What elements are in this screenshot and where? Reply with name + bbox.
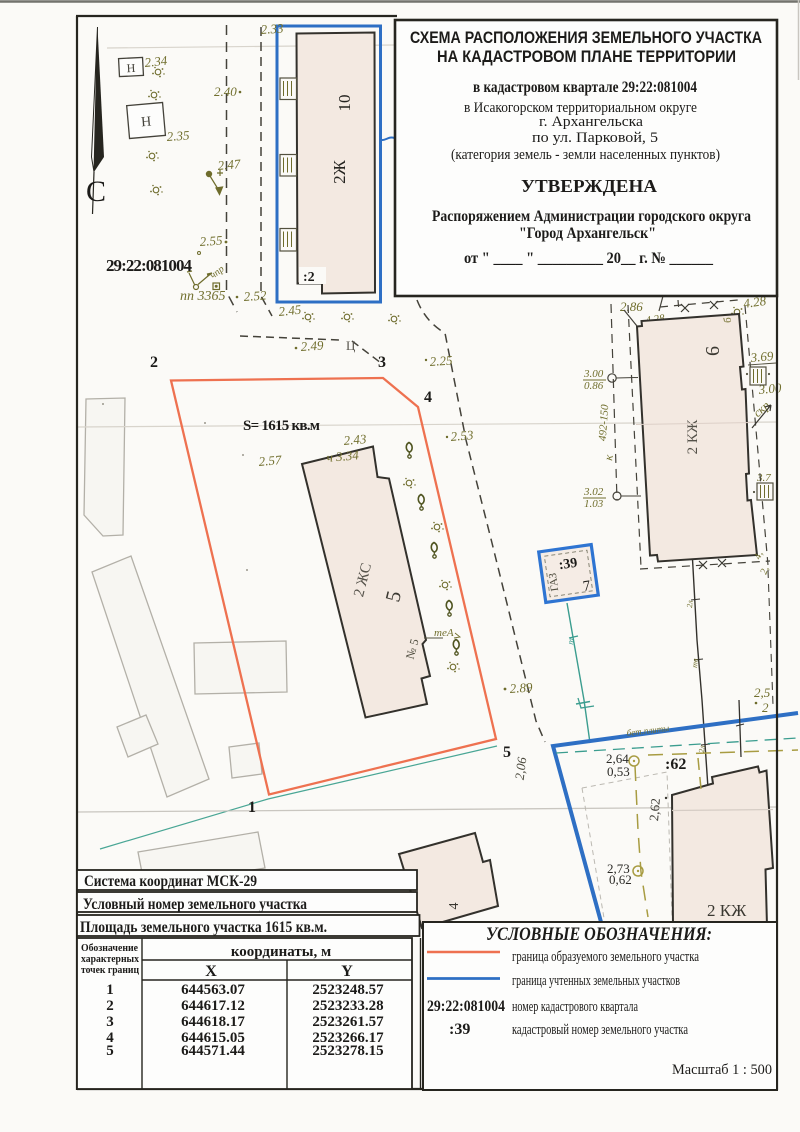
svg-text::62: :62 — [665, 756, 686, 773]
svg-text:2.49: 2.49 — [300, 337, 324, 354]
svg-text:1: 1 — [248, 799, 256, 816]
svg-text:0.86: 0.86 — [584, 380, 604, 392]
svg-text:2.53: 2.53 — [450, 427, 474, 444]
svg-text:Условный номер земельного учас: Условный номер земельного участка — [83, 896, 307, 913]
svg-text:пп 3365: пп 3365 — [180, 289, 226, 304]
svg-text:2523278.15: 2523278.15 — [312, 1043, 383, 1059]
svg-text:(категория земель - земли насе: (категория земель - земли населенных пун… — [451, 147, 720, 163]
svg-text:г. Архангельска: г. Архангельска — [539, 114, 643, 130]
svg-text::2: :2 — [303, 270, 315, 285]
svg-text:2: 2 — [106, 998, 114, 1014]
svg-text:Н: Н — [126, 61, 136, 75]
svg-text:10: 10 — [335, 95, 354, 112]
svg-text:Распоряжением Администрации го: Распоряжением Администрации городского о… — [432, 208, 751, 225]
svg-text:"Город Архангельск": "Город Архангельск" — [519, 225, 656, 242]
svg-text:граница учтенных земельных уча: граница учтенных земельных участков — [512, 973, 680, 989]
svg-text:X: X — [205, 963, 217, 980]
svg-text:5: 5 — [106, 1043, 114, 1059]
svg-text:2.35: 2.35 — [166, 127, 190, 144]
svg-text:3.02: 3.02 — [583, 486, 604, 498]
svg-text:2.33: 2.33 — [260, 20, 284, 37]
svg-text:2л: 2л — [685, 599, 695, 608]
svg-text:Обозначение: Обозначение — [81, 943, 138, 954]
svg-text:4: 4 — [447, 903, 462, 910]
svg-text:29:22:081004: 29:22:081004 — [106, 256, 193, 275]
svg-text:2.40: 2.40 — [214, 84, 237, 99]
svg-text:НА КАДАСТРОВОМ ПЛАНЕ ТЕРРИТОРИ: НА КАДАСТРОВОМ ПЛАНЕ ТЕРРИТОРИИ — [437, 47, 736, 66]
svg-text:2.43: 2.43 — [343, 431, 367, 448]
svg-text:теА: теА — [434, 627, 454, 639]
svg-text:29:22:081004: 29:22:081004 — [427, 998, 505, 1015]
svg-text:3.69: 3.69 — [749, 348, 774, 365]
svg-text:Y: Y — [341, 963, 353, 980]
svg-text:характерных: характерных — [81, 954, 140, 965]
svg-text:Система координат МСК-29: Система координат МСК-29 — [84, 873, 257, 890]
svg-text:координаты, м: координаты, м — [231, 944, 331, 960]
svg-text:5: 5 — [503, 744, 511, 761]
svg-text:1: 1 — [106, 982, 114, 998]
svg-text:СХЕМА РАСПОЛОЖЕНИЯ ЗЕМЕЛЬНОГО: СХЕМА РАСПОЛОЖЕНИЯ ЗЕМЕЛЬНОГО УЧАСТКА — [410, 28, 762, 47]
svg-text::39: :39 — [449, 1021, 470, 1038]
svg-text:2.34: 2.34 — [144, 53, 169, 70]
svg-text:от " ____ " _________ 20__: от " ____ " _________ 20__ г. № ______ — [464, 250, 714, 267]
svg-text:б: б — [722, 317, 734, 323]
svg-text:2.52: 2.52 — [243, 287, 267, 304]
svg-text:644617.12: 644617.12 — [181, 998, 245, 1014]
svg-text:УТВЕРЖДЕНА: УТВЕРЖДЕНА — [521, 176, 657, 196]
svg-text:3.7: 3.7 — [756, 472, 771, 484]
svg-text:Н: Н — [141, 115, 152, 131]
svg-text:2.86: 2.86 — [620, 299, 643, 314]
svg-text:Масштаб 1 : 500: Масштаб 1 : 500 — [672, 1062, 772, 1078]
svg-text:644618.17: 644618.17 — [181, 1014, 245, 1030]
svg-text:2523248.57: 2523248.57 — [312, 982, 384, 998]
svg-text:граница образуемого земельного: граница образуемого земельного участка — [512, 949, 699, 965]
svg-text:ч 3.34: ч 3.34 — [326, 447, 360, 465]
svg-text:0,53: 0,53 — [607, 764, 630, 779]
svg-text:2л: 2л — [697, 744, 707, 753]
svg-text:по ул. Парковой, 5: по ул. Парковой, 5 — [532, 130, 658, 146]
svg-text::39: :39 — [558, 556, 579, 573]
svg-text:Ц: Ц — [346, 338, 356, 353]
svg-text:2.55: 2.55 — [199, 232, 223, 249]
svg-text:2.47: 2.47 — [217, 156, 241, 173]
svg-text:2: 2 — [150, 354, 158, 371]
svg-text:2.89: 2.89 — [509, 679, 533, 696]
svg-text:2: 2 — [762, 700, 769, 715]
svg-text:6: 6 — [702, 346, 724, 356]
svg-text:УСЛОВНЫЕ ОБОЗНАЧЕНИЯ:: УСЛОВНЫЕ ОБОЗНАЧЕНИЯ: — [486, 924, 712, 945]
svg-text:Площадь земельного участка 161: Площадь земельного участка 1615 кв.м. — [80, 919, 327, 936]
svg-text:2.57: 2.57 — [258, 452, 282, 469]
svg-text:2.45: 2.45 — [278, 302, 303, 319]
svg-text:2,5: 2,5 — [754, 685, 771, 700]
svg-text:кадастровый номер земельного у: кадастровый номер земельного участка — [512, 1022, 688, 1038]
svg-text:С: С — [86, 175, 106, 208]
svg-text:4: 4 — [424, 389, 432, 406]
svg-text:2 КЖ: 2 КЖ — [707, 901, 747, 920]
svg-text:3: 3 — [106, 1014, 114, 1030]
svg-text:0,62: 0,62 — [609, 872, 632, 887]
svg-text:1.03: 1.03 — [584, 498, 604, 510]
svg-text:2523233.28: 2523233.28 — [312, 998, 383, 1014]
svg-text:3.00: 3.00 — [583, 368, 604, 380]
svg-text:S= 1615 кв.м: S= 1615 кв.м — [243, 418, 320, 434]
svg-text:2,06: 2,06 — [512, 756, 530, 781]
svg-text:2Ж: 2Ж — [330, 159, 349, 184]
svg-text:644571.44: 644571.44 — [181, 1043, 245, 1059]
svg-text:точек границ: точек границ — [81, 965, 139, 976]
svg-text:3: 3 — [378, 354, 386, 371]
svg-text:номер кадастрового квартала: номер кадастрового квартала — [512, 999, 638, 1015]
svg-text:в кадастровом квартале 29:22:0: в кадастровом квартале 29:22:081004 — [473, 79, 697, 96]
svg-text:тв: тв — [690, 658, 700, 669]
svg-text:2523261.57: 2523261.57 — [312, 1014, 384, 1030]
svg-text:644563.07: 644563.07 — [181, 982, 245, 998]
svg-text:2 КЖ: 2 КЖ — [685, 419, 701, 454]
svg-text:2.25: 2.25 — [429, 352, 453, 369]
svg-text:2,62: 2,62 — [646, 798, 663, 822]
